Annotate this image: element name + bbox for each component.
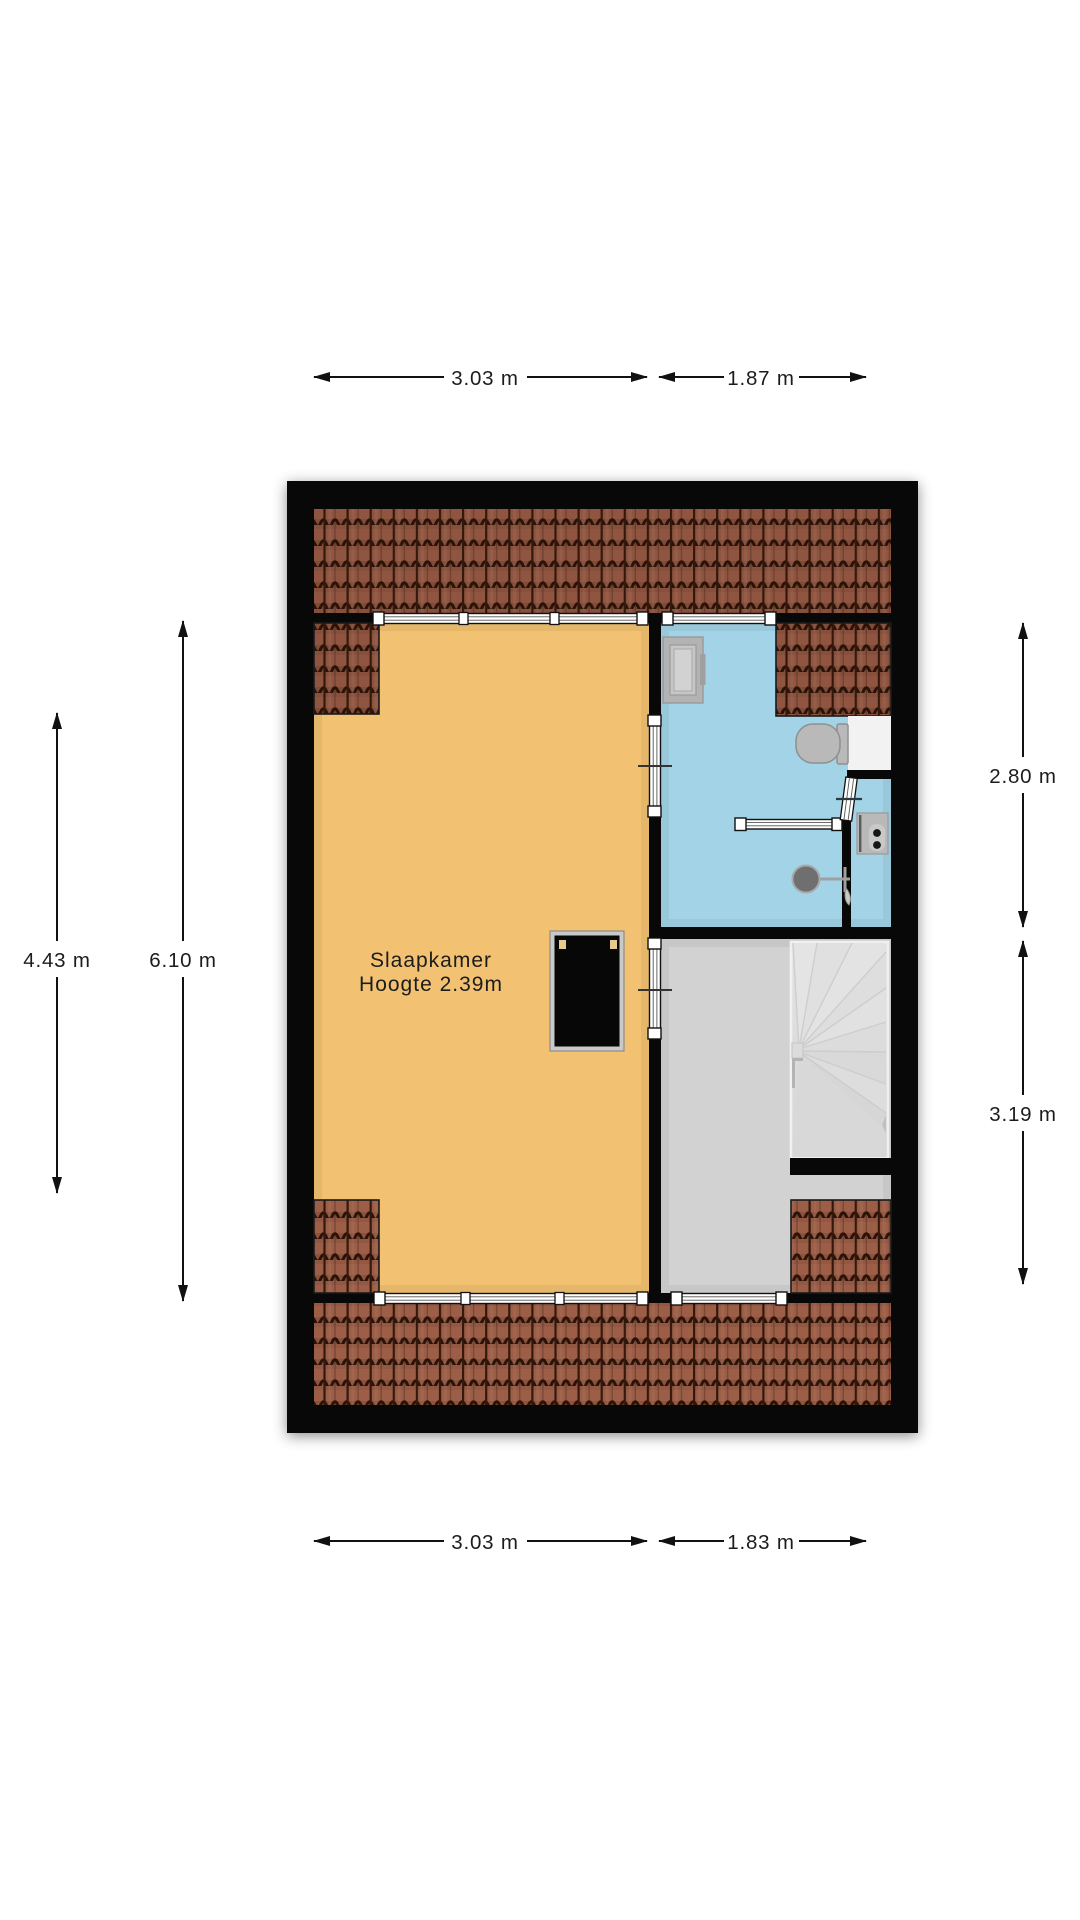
svg-text:1.83 m: 1.83 m [727,1531,794,1554]
svg-text:3.03 m: 3.03 m [451,367,518,390]
svg-text:2.80 m: 2.80 m [989,765,1056,788]
svg-text:4.43 m: 4.43 m [23,949,90,972]
svg-text:Slaapkamer: Slaapkamer [370,949,492,972]
svg-text:1.87 m: 1.87 m [727,367,794,390]
svg-text:3.19 m: 3.19 m [989,1103,1056,1126]
svg-text:6.10 m: 6.10 m [149,949,216,972]
svg-text:Hoogte 2.39m: Hoogte 2.39m [359,973,503,996]
svg-text:3.03 m: 3.03 m [451,1531,518,1554]
